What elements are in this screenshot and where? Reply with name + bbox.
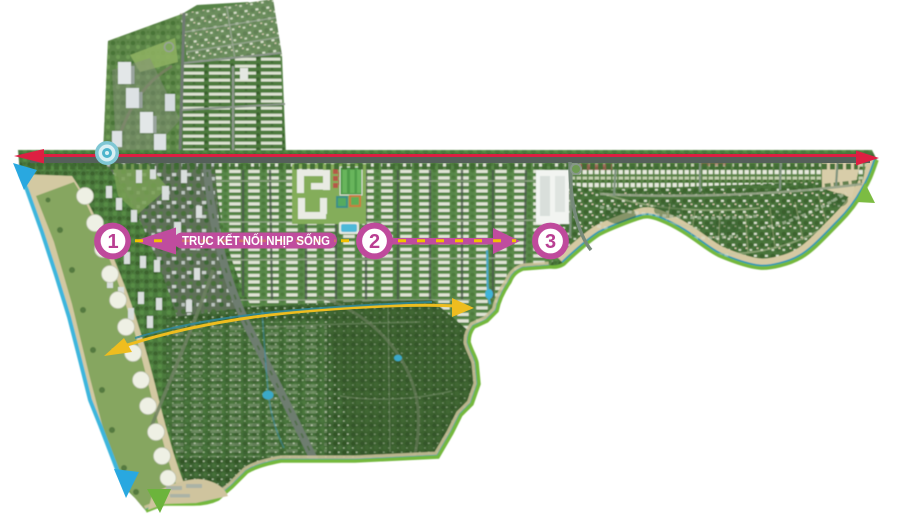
svg-text:3: 3 xyxy=(545,231,556,253)
svg-text:1: 1 xyxy=(107,231,118,253)
svg-text:TRỤC KẾT NỐI NHỊP SỐNG: TRỤC KẾT NỐI NHỊP SỐNG xyxy=(182,233,330,248)
svg-text:2: 2 xyxy=(369,231,380,253)
